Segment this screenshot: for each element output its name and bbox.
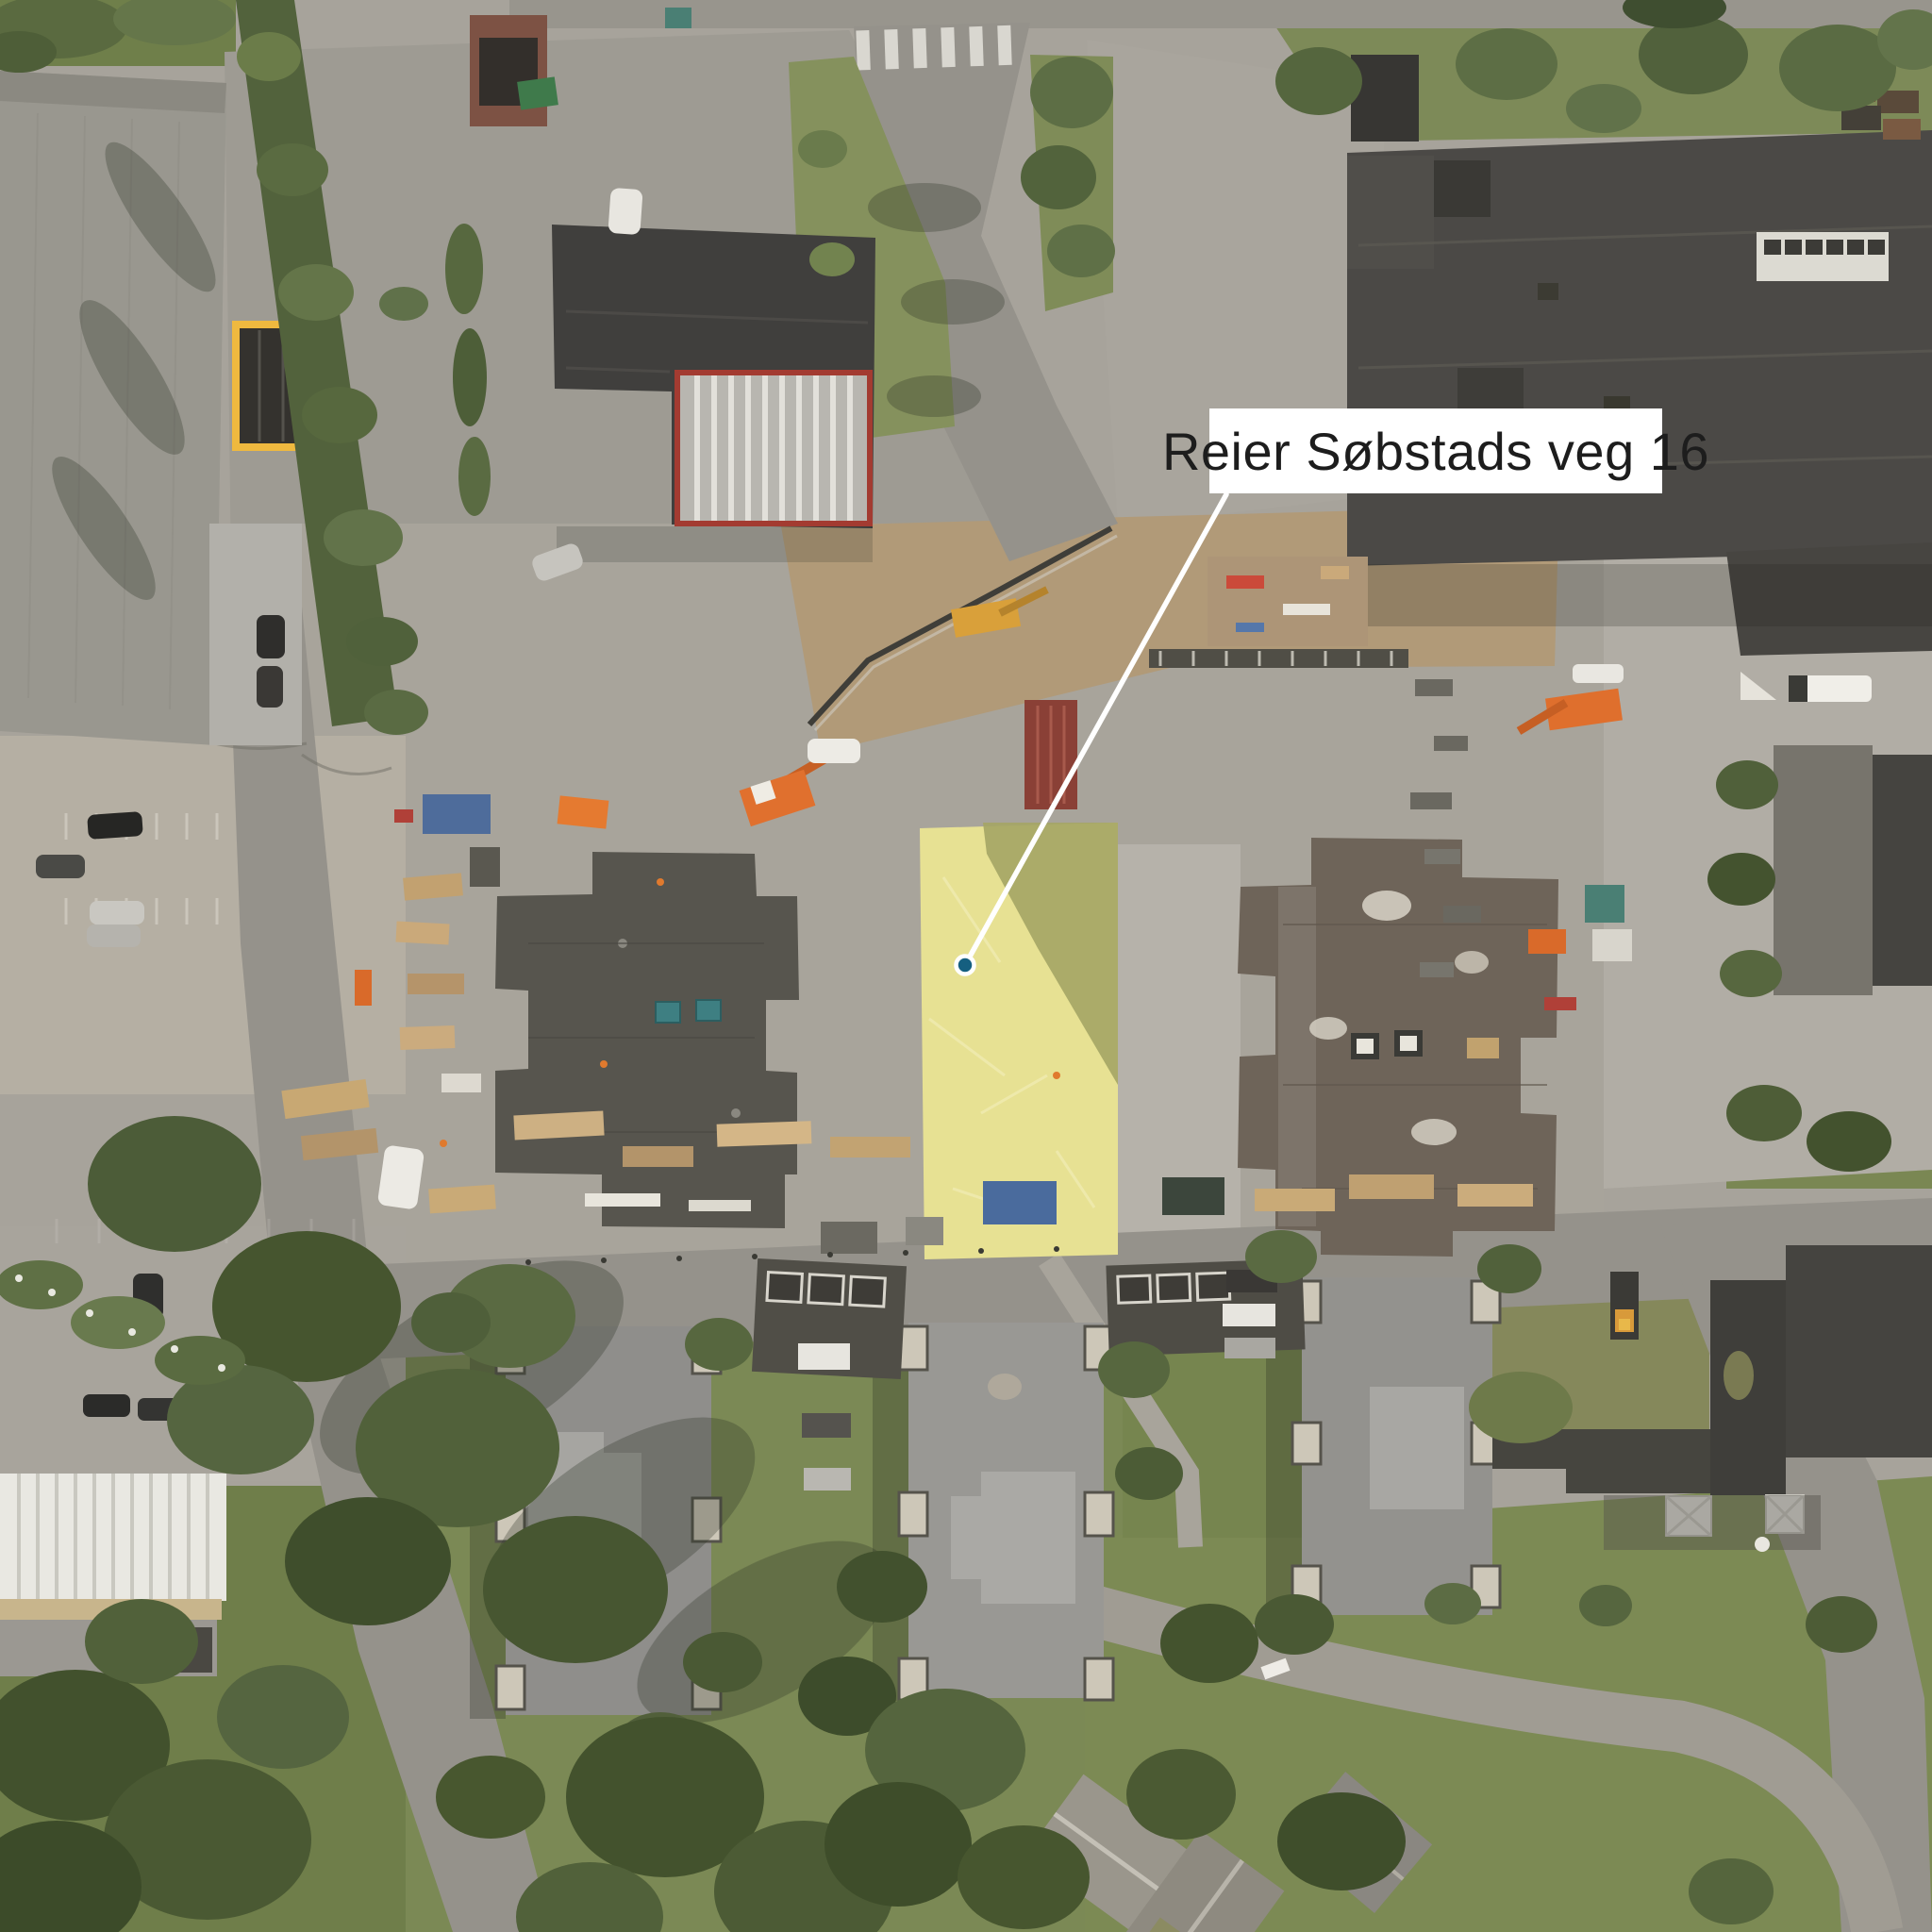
address-label-text: Reier Søbstads veg 16: [1162, 421, 1709, 482]
hvac-unit: [1757, 232, 1889, 281]
car: [1223, 1304, 1275, 1326]
red-shed: [470, 15, 547, 126]
car: [804, 1468, 851, 1491]
skylight: [696, 1000, 721, 1021]
east-edge-building: [1873, 755, 1932, 986]
retaining-wall: [1149, 649, 1408, 668]
location-marker[interactable]: [957, 957, 974, 974]
aerial-photo-layer: [0, 0, 1932, 1932]
white-van: [798, 1343, 850, 1370]
car: [1224, 1338, 1275, 1358]
containers: [1351, 55, 1419, 142]
formwork-stack: [1024, 700, 1077, 809]
apartment-building-c: [1292, 1277, 1500, 1615]
construction-building-west: [495, 852, 799, 1228]
loader-orange: [558, 795, 609, 828]
green-dumpster: [517, 76, 558, 109]
red-bordered-annex: [675, 370, 873, 526]
teal-dumpster: [665, 8, 691, 28]
blue-container: [983, 1181, 1057, 1224]
address-label: Reier Søbstads veg 16: [1209, 408, 1662, 493]
green-truck: [1162, 1177, 1224, 1215]
car: [802, 1413, 851, 1438]
aerial-map[interactable]: Reier Søbstads veg 16: [0, 0, 1932, 1932]
apartment-building-b: [899, 1323, 1113, 1700]
skylight: [656, 1002, 680, 1023]
